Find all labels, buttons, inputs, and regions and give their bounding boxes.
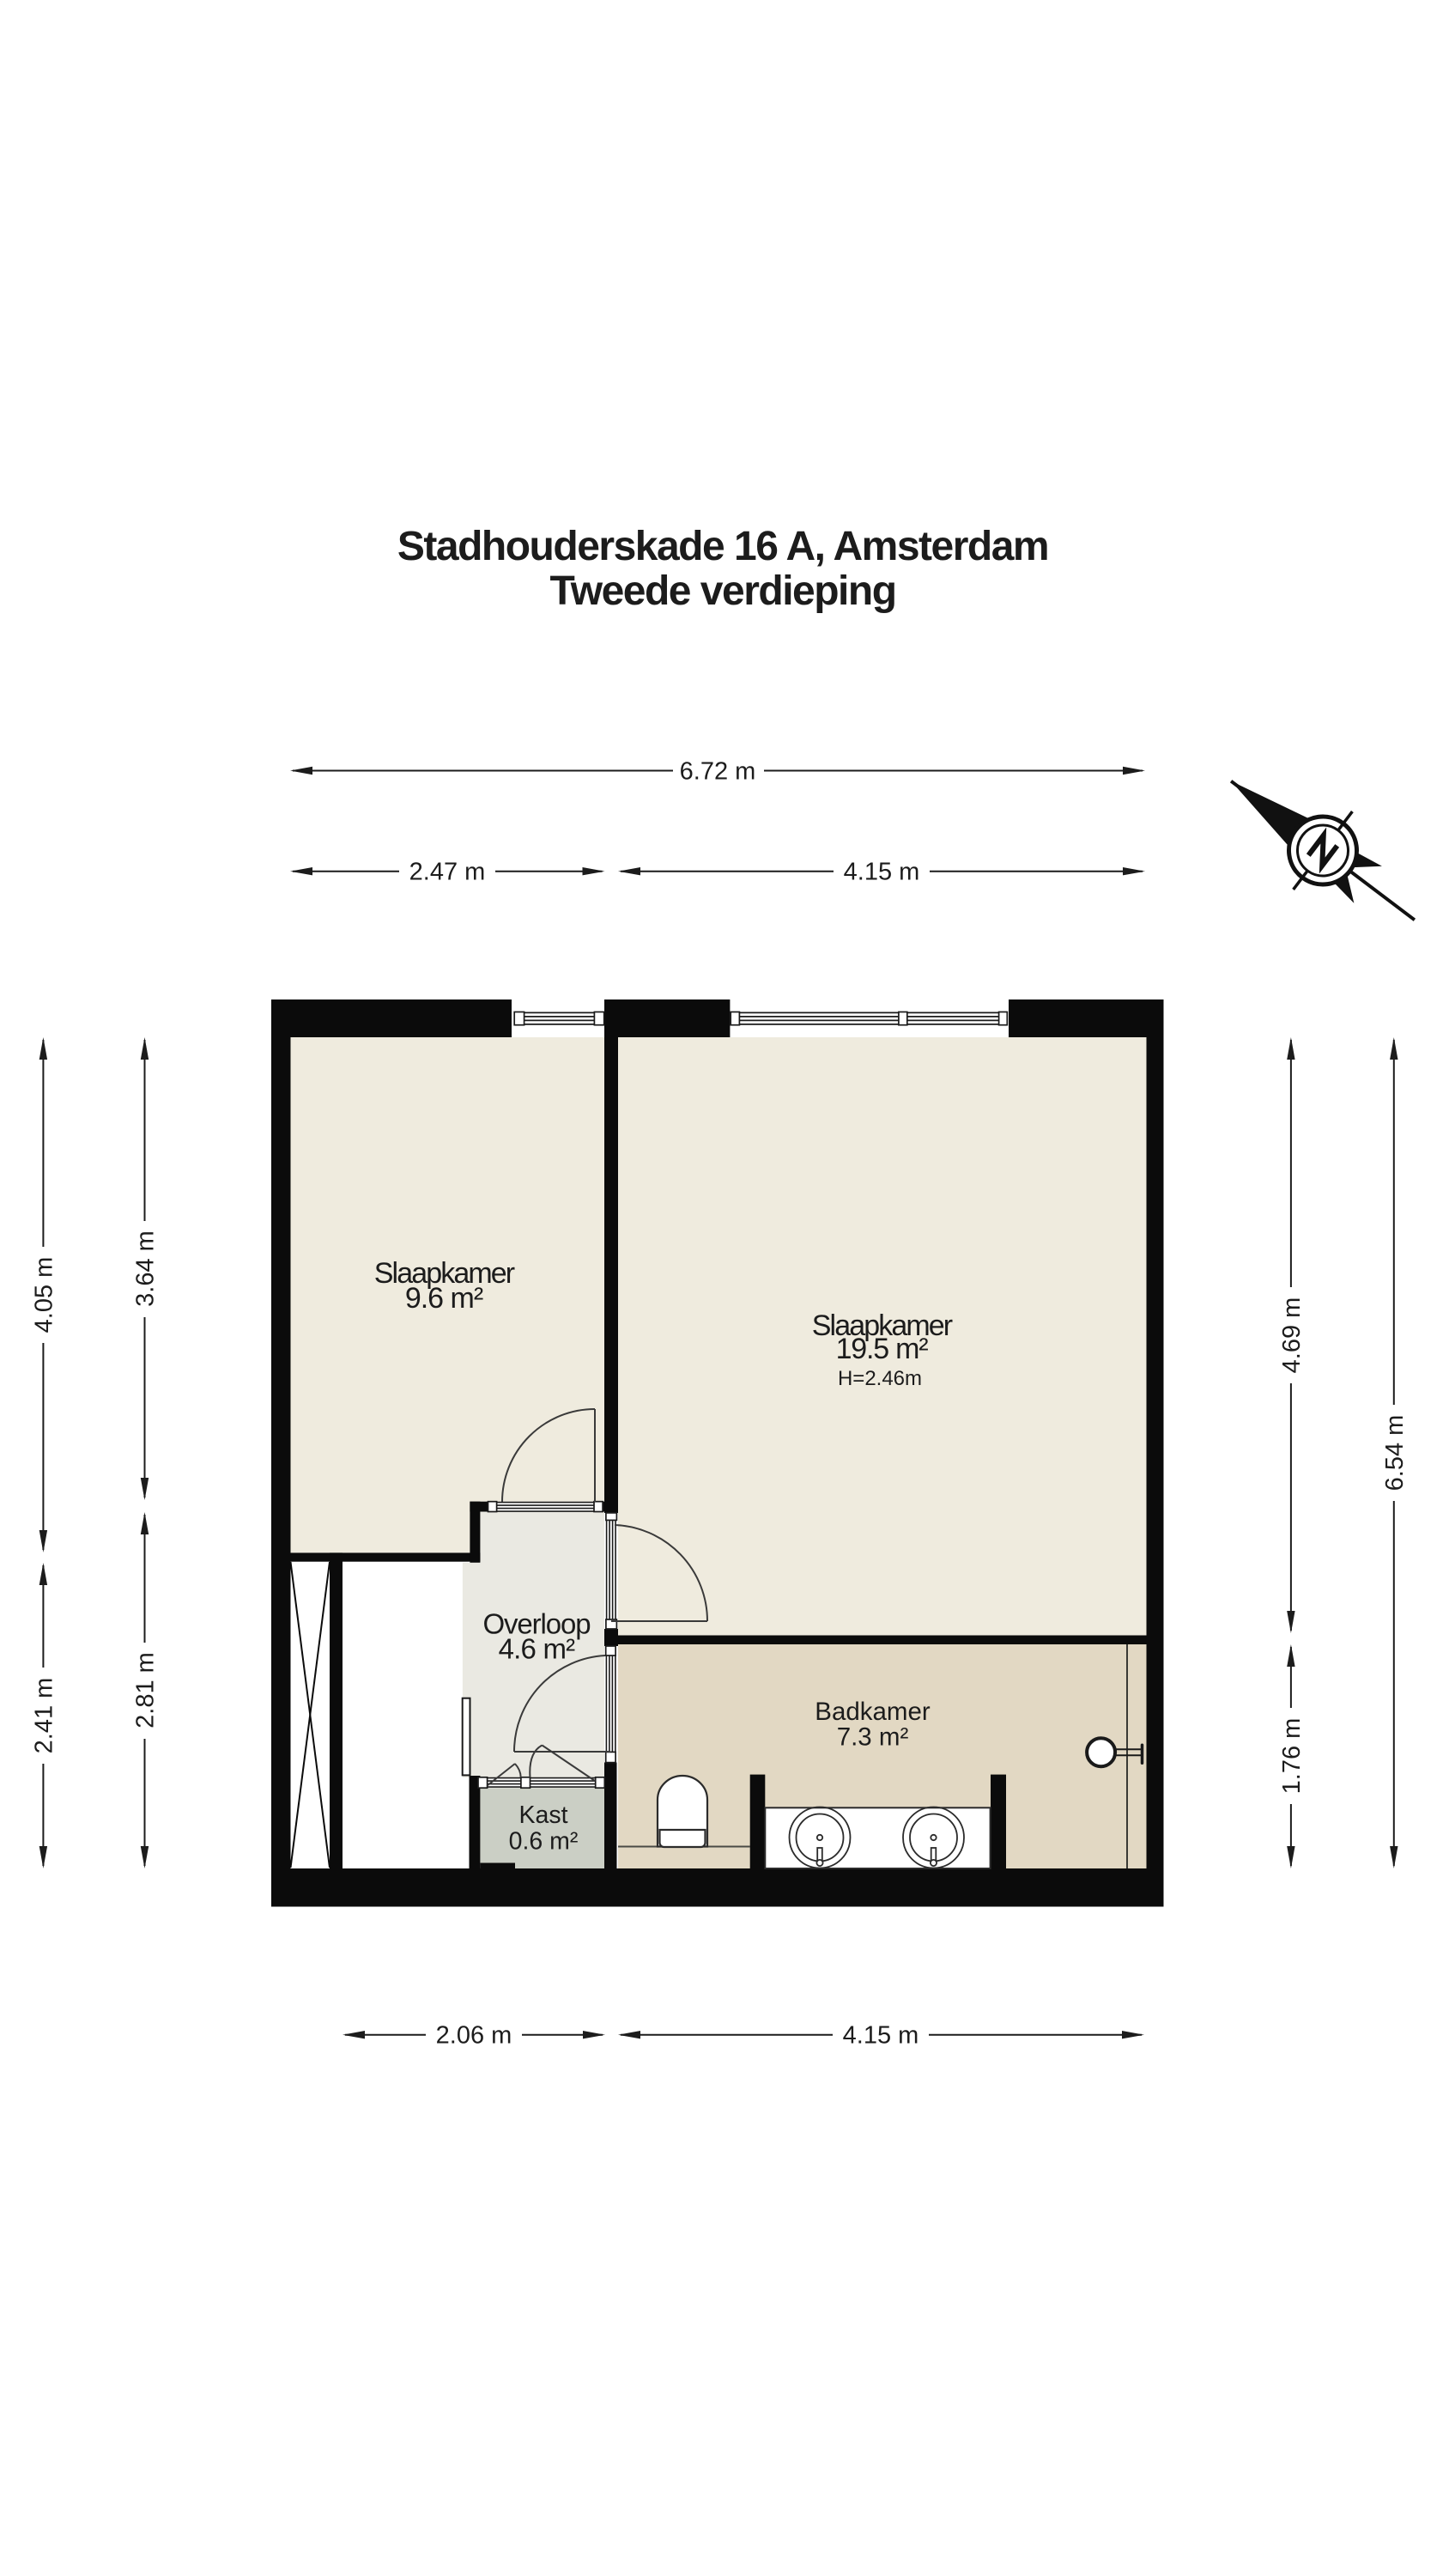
svg-text:9.6 m²: 9.6 m²: [405, 1282, 483, 1315]
svg-text:Tweede verdieping: Tweede verdieping: [549, 568, 895, 614]
svg-text:4.15 m: 4.15 m: [844, 859, 920, 886]
svg-text:2.06 m: 2.06 m: [436, 2022, 512, 2050]
svg-text:H=2.46m: H=2.46m: [838, 1367, 922, 1390]
svg-text:Stadhouderskade 16 A, Amsterda: Stadhouderskade 16 A, Amsterdam: [397, 524, 1048, 569]
svg-text:19.5 m²: 19.5 m²: [836, 1333, 929, 1365]
svg-text:0.6 m²: 0.6 m²: [509, 1828, 579, 1856]
svg-text:Badkamer: Badkamer: [815, 1698, 931, 1726]
svg-text:Kast: Kast: [518, 1801, 567, 1829]
svg-text:4.15 m: 4.15 m: [843, 2022, 919, 2050]
svg-text:4.6 m²: 4.6 m²: [499, 1633, 576, 1665]
svg-text:2.81 m: 2.81 m: [132, 1652, 160, 1728]
svg-text:6.72 m: 6.72 m: [680, 758, 756, 786]
svg-text:4.05 m: 4.05 m: [30, 1257, 58, 1334]
svg-text:2.47 m: 2.47 m: [409, 859, 486, 886]
svg-text:4.69 m: 4.69 m: [1278, 1297, 1306, 1374]
svg-text:2.41 m: 2.41 m: [30, 1678, 58, 1754]
svg-text:3.64 m: 3.64 m: [132, 1230, 160, 1307]
svg-text:6.54 m: 6.54 m: [1381, 1415, 1409, 1492]
svg-text:1.76 m: 1.76 m: [1278, 1718, 1306, 1795]
svg-text:7.3 m²: 7.3 m²: [837, 1723, 909, 1752]
